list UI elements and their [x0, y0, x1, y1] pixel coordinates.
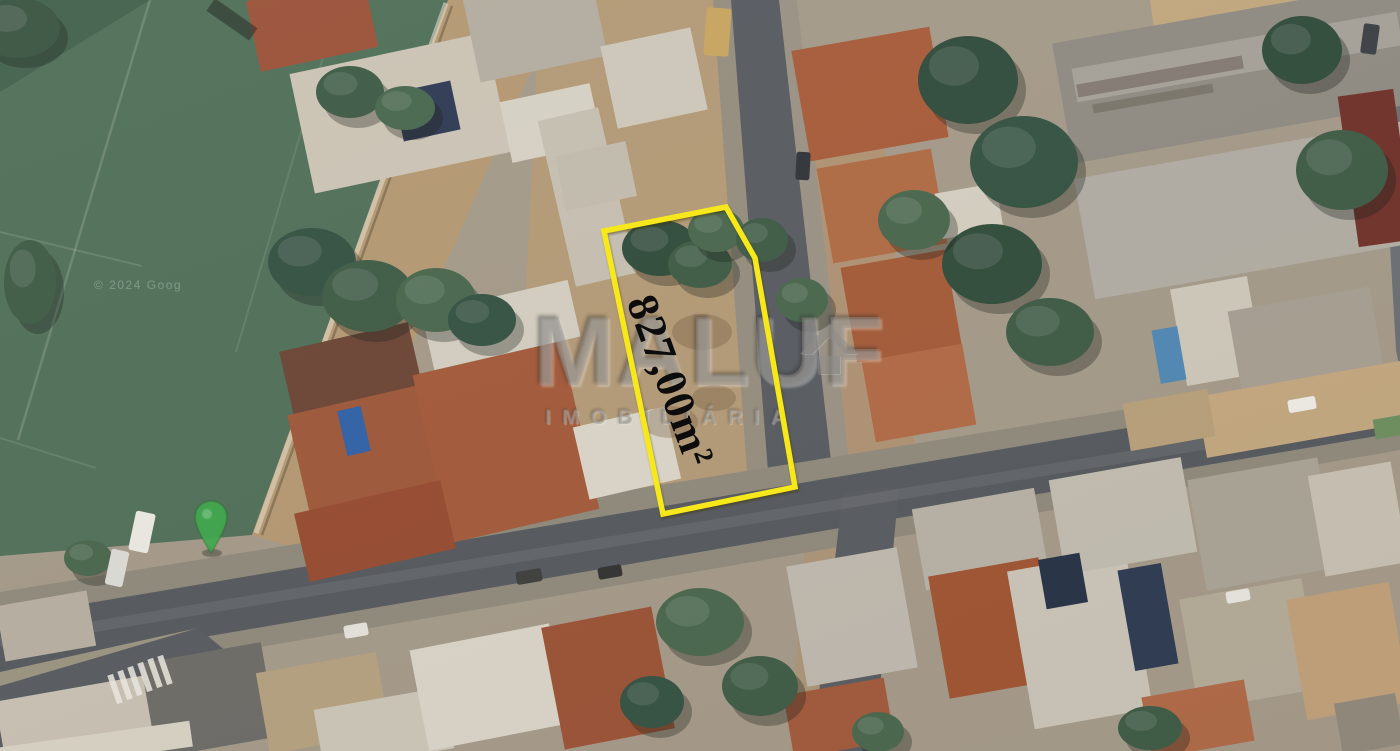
- imagery-attribution: © 2024 Goog: [94, 278, 182, 292]
- map-pin-icon: [194, 500, 228, 558]
- lot-outline: [604, 207, 795, 514]
- annotation-overlay: [0, 0, 1400, 751]
- satellite-photo[interactable]: MALUF IMOBILIÁRIA 827,00m² © 2024 Goog: [0, 0, 1400, 751]
